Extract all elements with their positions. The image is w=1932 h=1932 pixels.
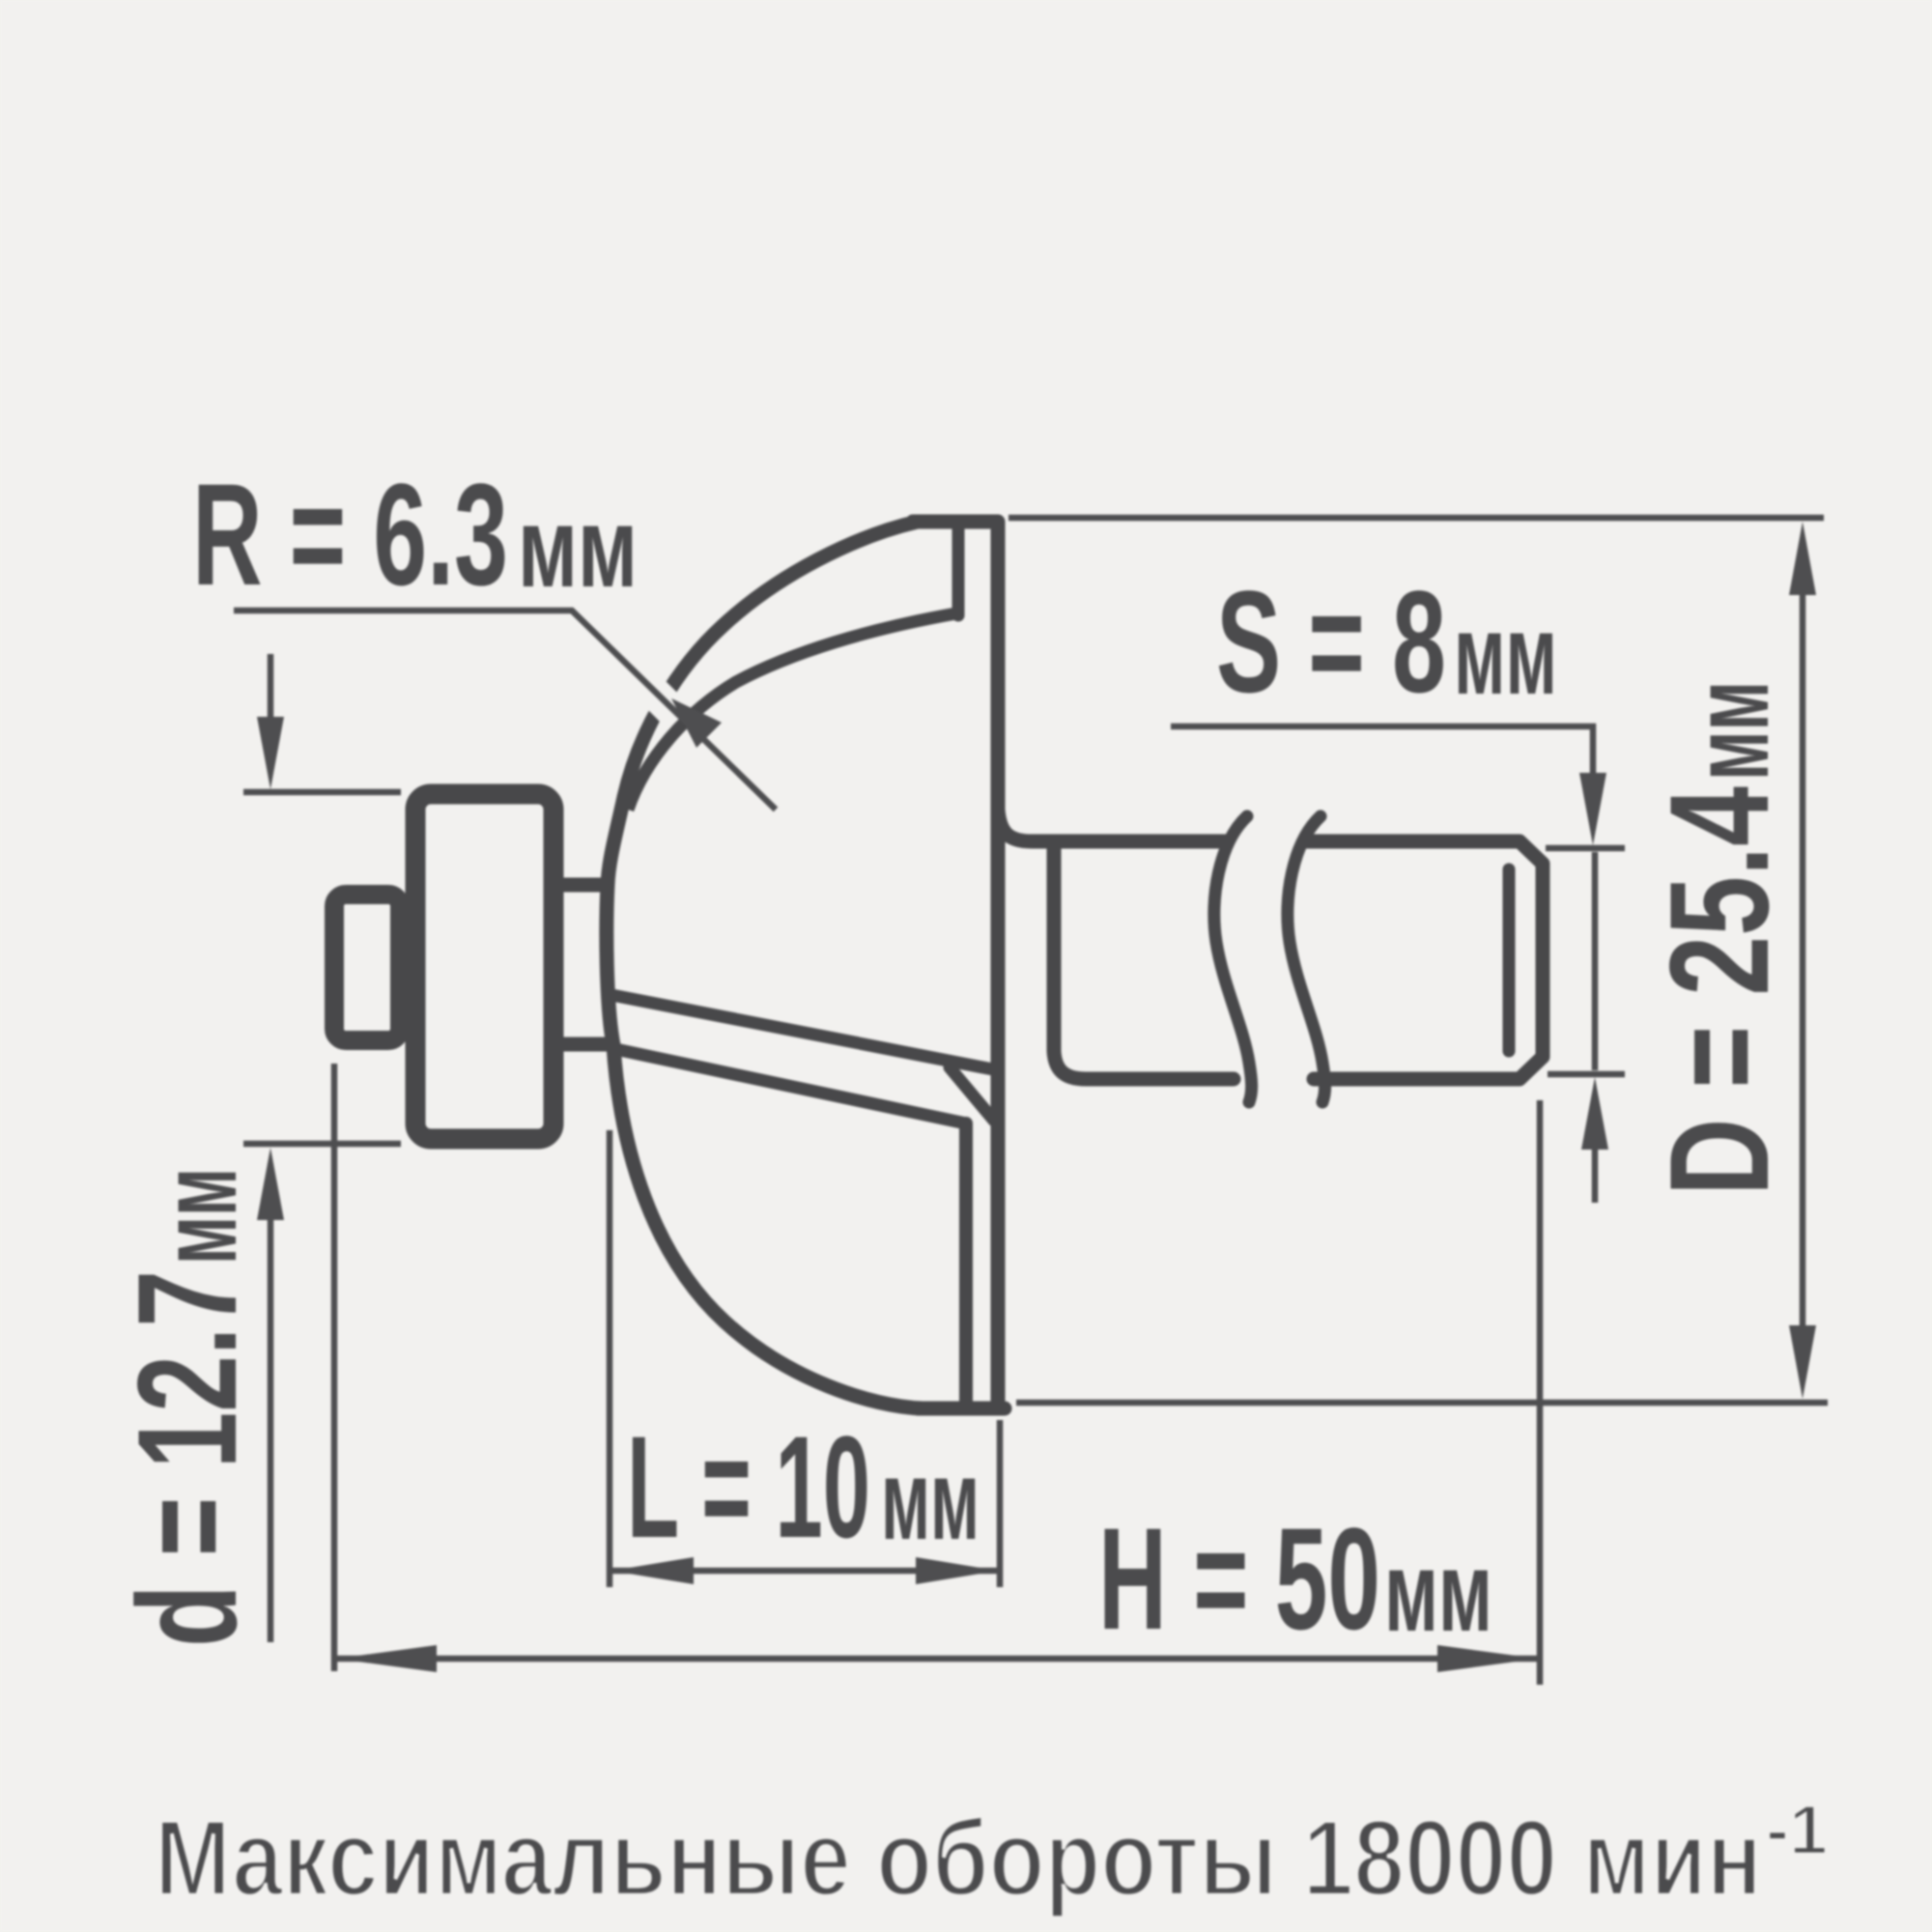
svg-text:мм: мм	[1670, 681, 1791, 781]
svg-text:d = 12.7: d = 12.7	[108, 1270, 266, 1647]
svg-text:S = 8: S = 8	[1216, 560, 1446, 723]
svg-text:R = 6.3: R = 6.3	[192, 453, 508, 615]
svg-text:мм: мм	[518, 484, 638, 611]
svg-text:мм: мм	[138, 1168, 259, 1264]
svg-text:мм: мм	[1454, 591, 1557, 719]
svg-text:L = 10: L = 10	[627, 1406, 870, 1568]
svg-text:Максимальные обороты 18000 мин: Максимальные обороты 18000 мин	[155, 1798, 1762, 1918]
svg-text:D = 25.4: D = 25.4	[1640, 786, 1798, 1196]
svg-text:H = 50: H = 50	[1098, 1497, 1380, 1660]
svg-text:мм: мм	[1384, 1528, 1492, 1656]
svg-text:-1: -1	[1766, 1792, 1828, 1869]
svg-text:мм: мм	[881, 1436, 980, 1564]
